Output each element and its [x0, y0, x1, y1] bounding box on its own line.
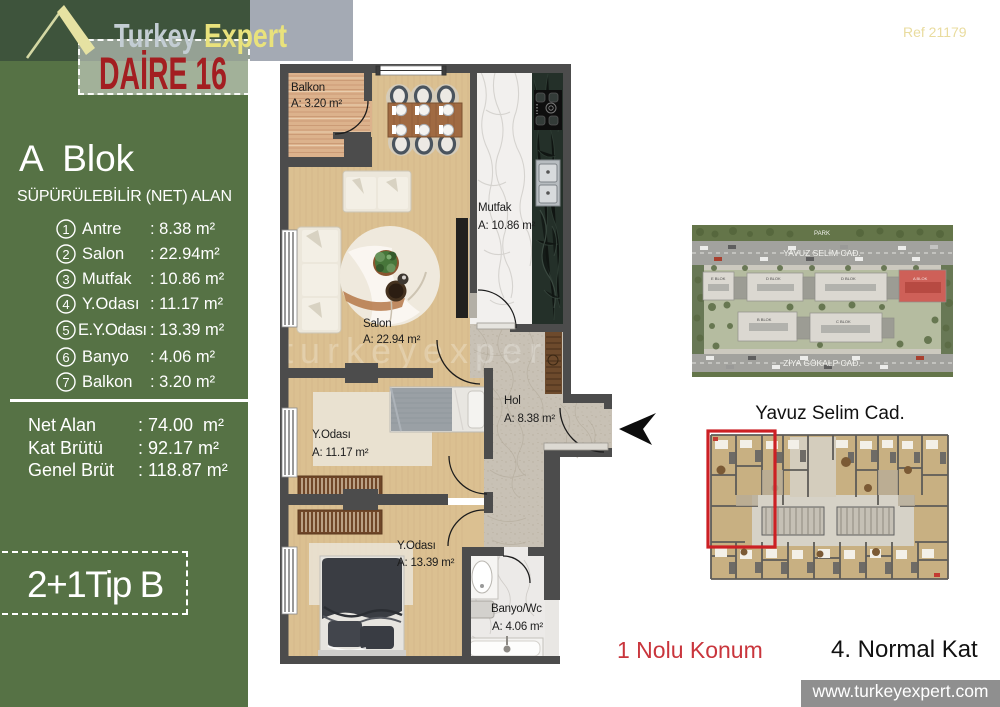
- svg-text:A: 8.38 m²: A: 8.38 m²: [504, 413, 555, 425]
- svg-text:D BLOK: D BLOK: [841, 276, 856, 281]
- svg-text:B BLOK: B BLOK: [757, 317, 772, 322]
- svg-text:Balkon: Balkon: [291, 82, 325, 94]
- svg-text:A: 3.20 m²: A: 3.20 m²: [291, 98, 342, 110]
- svg-text:A: 10.86 m²: A: 10.86 m²: [478, 220, 536, 232]
- svg-text:A: 4.06 m²: A: 4.06 m²: [492, 621, 543, 633]
- svg-text:Y.Odası: Y.Odası: [312, 429, 351, 441]
- svg-text:E BLOK: E BLOK: [711, 276, 726, 281]
- svg-text:YAVUZ SELİM CAD.: YAVUZ SELİM CAD.: [783, 248, 861, 258]
- svg-text:PARK: PARK: [814, 231, 830, 237]
- svg-text:C BLOK: C BLOK: [836, 319, 851, 324]
- svg-text:Y.Odası: Y.Odası: [397, 540, 436, 552]
- svg-text:Hol: Hol: [504, 395, 521, 407]
- svg-text:Mutfak: Mutfak: [478, 202, 512, 214]
- svg-text:A: 22.94 m²: A: 22.94 m²: [363, 334, 421, 346]
- svg-text:A: 11.17 m²: A: 11.17 m²: [312, 447, 369, 459]
- svg-text:A: 13.39 m²: A: 13.39 m²: [397, 557, 455, 569]
- svg-text:A BLOK: A BLOK: [913, 276, 928, 281]
- svg-text:D BLOK: D BLOK: [766, 276, 781, 281]
- svg-text:ZİYA GÖKALP CAD.: ZİYA GÖKALP CAD.: [783, 358, 861, 368]
- svg-text:Banyo/Wc: Banyo/Wc: [491, 603, 542, 615]
- svg-text:Salon: Salon: [363, 318, 391, 330]
- svg-text:turkeyexpert: turkeyexpert: [283, 330, 565, 371]
